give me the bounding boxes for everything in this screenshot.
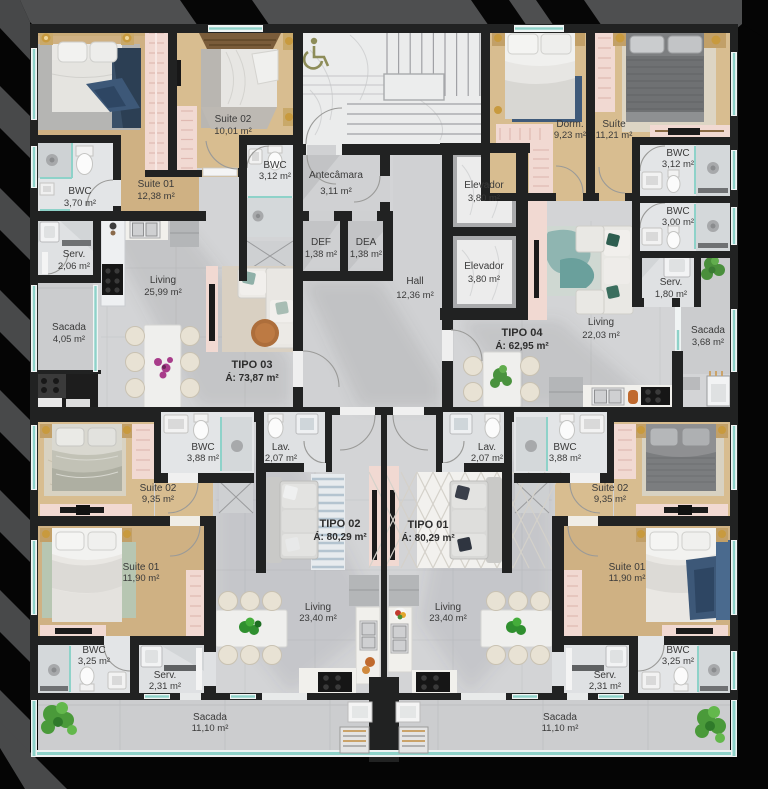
svg-text:3,68 m²: 3,68 m² — [692, 337, 724, 348]
svg-text:Á: 62,95 m²: Á: 62,95 m² — [495, 339, 549, 352]
svg-text:11,90 m²: 11,90 m² — [123, 573, 160, 584]
svg-text:Suite 01: Suite 01 — [123, 562, 160, 573]
svg-text:Suite 02: Suite 02 — [215, 114, 252, 125]
svg-text:10,01 m²: 10,01 m² — [214, 126, 252, 137]
svg-text:Sacada: Sacada — [691, 325, 725, 336]
svg-text:3,12 m²: 3,12 m² — [259, 171, 291, 182]
svg-text:11,10 m²: 11,10 m² — [192, 723, 229, 734]
svg-text:3,88 m²: 3,88 m² — [187, 453, 219, 464]
svg-text:22,03 m²: 22,03 m² — [582, 330, 620, 341]
svg-text:3,70 m²: 3,70 m² — [64, 198, 96, 209]
svg-text:3,12 m²: 3,12 m² — [662, 159, 694, 170]
svg-text:3,11 m²: 3,11 m² — [320, 186, 352, 197]
svg-text:4,05 m²: 4,05 m² — [53, 334, 85, 345]
svg-text:Living: Living — [305, 602, 331, 613]
svg-text:BWC: BWC — [553, 442, 576, 453]
svg-text:BWC: BWC — [666, 645, 689, 656]
svg-text:Sacada: Sacada — [52, 322, 86, 333]
svg-text:BWC: BWC — [68, 186, 91, 197]
svg-text:Serv.: Serv. — [594, 670, 617, 681]
svg-text:Lav.: Lav. — [272, 442, 290, 453]
svg-text:BWC: BWC — [263, 160, 286, 171]
svg-text:TIPO 01: TIPO 01 — [408, 519, 449, 531]
svg-text:Á: 73,87 m²: Á: 73,87 m² — [225, 371, 279, 384]
svg-text:Serv.: Serv. — [63, 249, 86, 260]
svg-text:Suite 02: Suite 02 — [140, 483, 177, 494]
svg-text:2,07 m²: 2,07 m² — [471, 453, 503, 464]
svg-text:1,38 m²: 1,38 m² — [305, 249, 337, 260]
svg-text:3,25 m²: 3,25 m² — [662, 656, 694, 667]
svg-text:BWC: BWC — [666, 148, 689, 159]
svg-text:Dorm.: Dorm. — [556, 119, 583, 130]
svg-text:23,40 m²: 23,40 m² — [299, 613, 337, 624]
svg-text:Sacada: Sacada — [543, 712, 577, 723]
svg-text:3,88 m²: 3,88 m² — [549, 453, 581, 464]
svg-text:9,35 m²: 9,35 m² — [142, 494, 174, 505]
svg-text:BWC: BWC — [666, 206, 689, 217]
svg-text:Living: Living — [150, 275, 176, 286]
svg-text:TIPO 03: TIPO 03 — [232, 359, 273, 371]
svg-text:TIPO 02: TIPO 02 — [320, 518, 361, 530]
svg-text:Sacada: Sacada — [193, 712, 227, 723]
svg-text:23,40 m²: 23,40 m² — [429, 613, 467, 624]
svg-text:Suite 02: Suite 02 — [592, 483, 629, 494]
svg-text:DEA: DEA — [356, 237, 377, 248]
svg-text:1,80 m²: 1,80 m² — [655, 289, 687, 300]
svg-text:12,36 m²: 12,36 m² — [396, 290, 434, 301]
svg-text:Á: 80,29 m²: Á: 80,29 m² — [401, 531, 455, 544]
svg-text:Elevador: Elevador — [464, 261, 504, 272]
svg-text:1,38 m²: 1,38 m² — [350, 249, 382, 260]
svg-text:3,80 m²: 3,80 m² — [468, 193, 500, 204]
svg-text:11,21 m²: 11,21 m² — [596, 130, 633, 141]
svg-text:Antecâmara: Antecâmara — [309, 170, 363, 181]
svg-text:Living: Living — [588, 317, 614, 328]
svg-text:BWC: BWC — [191, 442, 214, 453]
svg-text:2,31 m²: 2,31 m² — [589, 681, 621, 692]
svg-text:2,07 m²: 2,07 m² — [265, 453, 297, 464]
svg-text:Suite 01: Suite 01 — [609, 562, 646, 573]
svg-text:3,80 m²: 3,80 m² — [468, 274, 500, 285]
svg-text:25,99 m²: 25,99 m² — [144, 287, 182, 298]
svg-text:2,31 m²: 2,31 m² — [149, 681, 181, 692]
svg-text:Serv.: Serv. — [154, 670, 177, 681]
svg-text:Suíte: Suíte — [602, 119, 626, 130]
svg-text:BWC: BWC — [82, 645, 105, 656]
svg-text:Elevador: Elevador — [464, 180, 504, 191]
svg-text:3,25 m²: 3,25 m² — [78, 656, 110, 667]
svg-text:11,10 m²: 11,10 m² — [542, 723, 579, 734]
svg-text:Living: Living — [435, 602, 461, 613]
svg-text:2,06 m²: 2,06 m² — [58, 261, 90, 272]
svg-text:Serv.: Serv. — [660, 277, 683, 288]
svg-text:Hall: Hall — [406, 276, 423, 287]
svg-text:Á: 80,29 m²: Á: 80,29 m² — [313, 530, 367, 543]
svg-text:9,23 m²: 9,23 m² — [554, 130, 586, 141]
svg-text:12,38 m²: 12,38 m² — [137, 191, 175, 202]
svg-text:TIPO 04: TIPO 04 — [502, 327, 544, 339]
svg-text:Lav.: Lav. — [478, 442, 496, 453]
svg-text:Suite 01: Suite 01 — [138, 179, 175, 190]
svg-text:DEF: DEF — [311, 237, 331, 248]
svg-text:9,35 m²: 9,35 m² — [594, 494, 626, 505]
svg-text:3,00 m²: 3,00 m² — [662, 217, 694, 228]
svg-text:11,90 m²: 11,90 m² — [609, 573, 646, 584]
